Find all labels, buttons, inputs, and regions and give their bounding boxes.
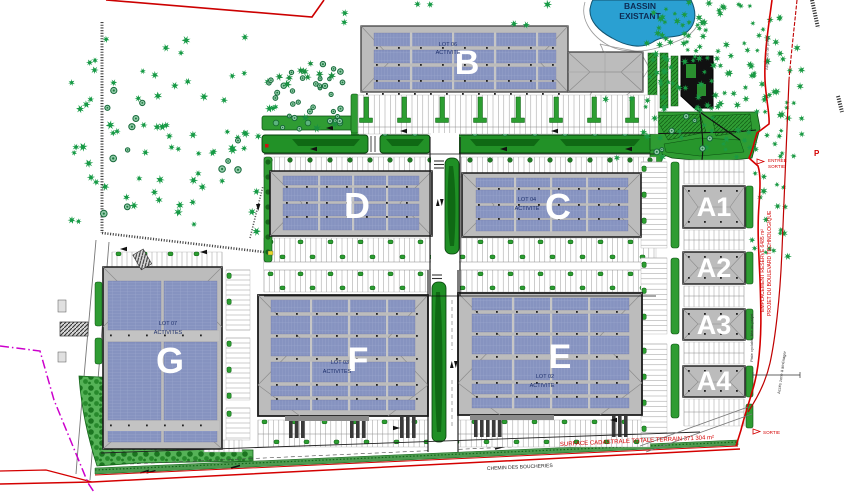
svg-text:E: E <box>549 338 572 376</box>
svg-text:LOT 06: LOT 06 <box>439 42 457 48</box>
svg-text:ACTIVITES: ACTIVITES <box>323 369 352 375</box>
svg-text:PROJET DU BOULEVARD TECHNOLOGI: PROJET DU BOULEVARD TECHNOLOGIQUE <box>767 210 773 316</box>
svg-text:ACTIVITES: ACTIVITES <box>154 330 183 336</box>
svg-text:ACTIVITE: ACTIVITE <box>530 383 555 389</box>
svg-text:SORTIE: SORTIE <box>768 164 785 169</box>
svg-text:EMPLACEMENT RESERVE 6485 m²: EMPLACEMENT RESERVE 6485 m² <box>760 229 766 312</box>
svg-text:C: C <box>545 186 571 227</box>
svg-text:D: D <box>344 185 370 226</box>
svg-text:Piste cyclable liée au projet: Piste cyclable liée au projet <box>749 313 754 362</box>
svg-text:A1: A1 <box>697 192 732 222</box>
svg-text:BASSIN: BASSIN <box>624 1 656 11</box>
svg-text:G: G <box>156 340 184 381</box>
svg-text:LOT 07: LOT 07 <box>159 321 177 327</box>
svg-text:ENTREE: ENTREE <box>768 158 787 163</box>
svg-text:LOT 03: LOT 03 <box>331 360 349 366</box>
svg-text:SORTIE: SORTIE <box>763 430 780 435</box>
svg-text:LOT 04: LOT 04 <box>518 197 536 203</box>
svg-text:ACTIVITE: ACTIVITE <box>515 206 540 212</box>
svg-text:P: P <box>814 149 820 158</box>
svg-text:ACTIVITE: ACTIVITE <box>436 50 461 56</box>
svg-text:LOT 02: LOT 02 <box>536 374 554 380</box>
svg-text:A4: A4 <box>697 366 732 396</box>
svg-text:A3: A3 <box>697 310 732 340</box>
svg-text:A2: A2 <box>697 253 732 283</box>
